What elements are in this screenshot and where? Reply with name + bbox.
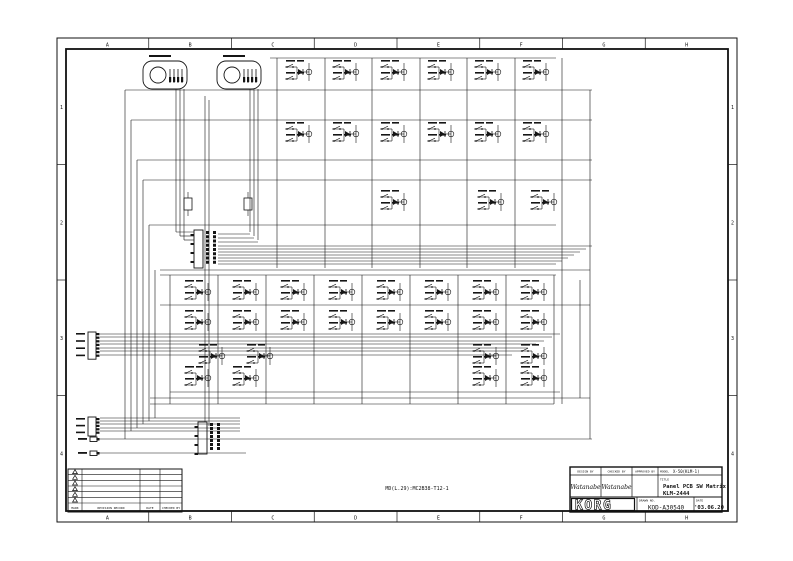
switch-cell [376, 280, 403, 301]
grid-letter: A [106, 516, 109, 522]
grid-number: 1 [731, 105, 734, 111]
grid-letter: C [271, 516, 274, 522]
titleblock-title-line1: Panel PCB SW Matrix [663, 484, 727, 490]
titleblock-model-value: X-50(KLM-1) [673, 469, 700, 474]
revision-table-headers: MARK REVISION RECORD DATE CHECKED BY [71, 506, 180, 510]
grid-letter: E [437, 43, 440, 49]
switch-cell [380, 60, 407, 81]
titleblock-checked-signature: Watanabe [601, 484, 631, 491]
switch-cell [424, 280, 451, 301]
footer-note: MD(L.29):MC2B38-T12-1 [385, 486, 448, 492]
switch-cell [332, 122, 359, 143]
revision-triangle [73, 475, 78, 479]
drawing-frame [57, 38, 737, 522]
switch-cell [380, 190, 407, 211]
titleblock-approved-by-label: APPROVED BY [635, 470, 655, 474]
grid-letter: F [520, 43, 523, 49]
switch-cell [328, 310, 355, 331]
switch-cell [376, 310, 403, 331]
grid-reference-labels: AABBCCDDEEFFGGHH11223344 [57, 38, 737, 522]
grid-letter: G [602, 516, 605, 522]
board-connector [76, 332, 100, 359]
resistor [184, 192, 192, 216]
switch-cell [184, 366, 211, 387]
revision-triangle [73, 481, 78, 485]
switch-cell [427, 122, 454, 143]
grid-letter: B [189, 516, 192, 522]
switch-cell [520, 310, 547, 331]
titleblock-model-label: MODEL [660, 470, 669, 474]
grid-number: 3 [731, 336, 734, 342]
grid-letter: A [106, 43, 109, 49]
switch-cell [380, 122, 407, 143]
grid-number: 1 [60, 105, 63, 111]
jack-connector [217, 55, 261, 89]
switch-cell [522, 122, 549, 143]
revision-header-checked: CHECKED BY [162, 506, 180, 510]
switch-cell [198, 344, 225, 365]
switch-cell [184, 280, 211, 301]
grid-letter: E [437, 516, 440, 522]
switch-cell [472, 366, 499, 387]
revision-header-record: REVISION RECORD [97, 506, 124, 510]
schematic-sheet: AABBCCDDEEFFGGHH11223344 MARK REVISION R… [0, 0, 793, 561]
switch-cell [280, 280, 307, 301]
wire-layer [96, 58, 592, 453]
switch-cell [285, 60, 312, 81]
resistor [244, 192, 252, 216]
title-block: DESIGN BY CHECKED BY APPROVED BY MODEL X… [570, 467, 727, 514]
switch-cell [472, 280, 499, 301]
grid-letter: H [685, 43, 688, 49]
grid-number: 4 [60, 451, 63, 457]
switch-cell [472, 344, 499, 365]
grid-letter: D [354, 43, 357, 49]
revision-triangle [73, 492, 78, 496]
titleblock-title-line2: KLM-2444 [663, 491, 690, 497]
switch-cell [520, 366, 547, 387]
switch-cell [424, 310, 451, 331]
revision-header-mark: MARK [71, 506, 78, 510]
grid-letter: F [520, 516, 523, 522]
switch-cell [427, 60, 454, 81]
grid-letter: C [271, 43, 274, 49]
board-connector [76, 417, 100, 436]
korg-logo: KORG [575, 499, 612, 514]
grid-number: 3 [60, 336, 63, 342]
titleblock-date-label: DATE [696, 499, 703, 503]
titleblock-design-by-label: DESIGN BY [577, 470, 593, 474]
switch-cell [280, 310, 307, 331]
grid-letter: B [189, 43, 192, 49]
grid-number: 2 [731, 220, 734, 226]
resistor-array-ic [191, 230, 217, 268]
titleblock-drawing-no-label: DRAWN NO. [639, 499, 655, 503]
switch-cell [477, 190, 504, 211]
switch-cell [232, 280, 259, 301]
titleblock-checked-by-label: CHECKED BY [607, 470, 625, 474]
switch-cell [474, 60, 501, 81]
resistor-array-ic [195, 422, 221, 455]
grid-number: 4 [731, 451, 734, 457]
revision-triangle [73, 498, 78, 502]
titleblock-date: '03.06.20 [694, 505, 724, 511]
grid-letter: G [602, 43, 605, 49]
switch-cell [332, 60, 359, 81]
revision-triangle [73, 487, 78, 491]
switch-cell [522, 60, 549, 81]
titleblock-title-label: TITLE [660, 478, 669, 482]
schematic-canvas: AABBCCDDEEFFGGHH11223344 MARK REVISION R… [0, 0, 793, 561]
switch-cell [184, 310, 211, 331]
switch-cell [472, 310, 499, 331]
grid-letter: H [685, 516, 688, 522]
switch-cell [530, 190, 557, 211]
titleblock-drawing-no: KOD-A30540 [648, 505, 685, 512]
switch-cell [232, 310, 259, 331]
switch-cell [328, 280, 355, 301]
titleblock-design-signature: Watanabe [570, 484, 600, 491]
revision-triangle [73, 470, 78, 474]
switch-cell [285, 122, 312, 143]
jack-connector [143, 55, 187, 89]
revision-header-date: DATE [146, 506, 153, 510]
switch-cell [232, 366, 259, 387]
switch-cell [520, 280, 547, 301]
switch-cell [474, 122, 501, 143]
grid-letter: D [354, 516, 357, 522]
grid-number: 2 [60, 220, 63, 226]
switch-cell [246, 344, 273, 365]
switch-cell [520, 344, 547, 365]
